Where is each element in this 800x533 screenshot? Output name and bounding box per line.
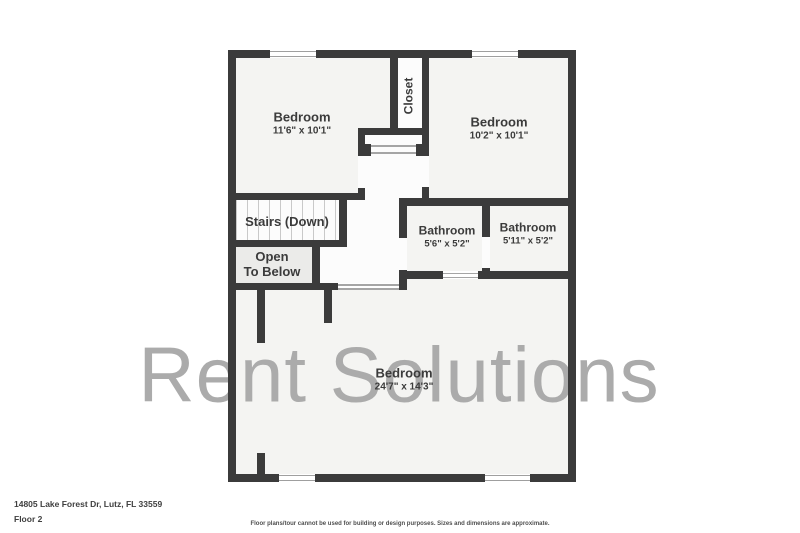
room-name: To Below <box>244 265 301 280</box>
opening-line <box>443 273 478 275</box>
room-name: Bedroom <box>470 115 529 131</box>
door-opening-bedroom-top-right <box>422 155 429 187</box>
opening-cap <box>416 144 429 156</box>
door-opening-bathroom-right <box>482 237 490 268</box>
window-symbol <box>272 474 322 482</box>
door-opening-bathroom-left <box>399 238 407 270</box>
opening-line <box>338 288 399 290</box>
wall-closet-right <box>422 58 429 155</box>
room-label-bedroom-bottom: Bedroom 24'7" x 14'3" <box>375 366 434 395</box>
room-name: Closet <box>402 78 417 115</box>
room-label-bedroom-top-right: Bedroom 10'2" x 10'1" <box>470 115 529 144</box>
room-label-bathroom-left: Bathroom 5'6" x 5'2" <box>419 224 476 251</box>
wall-bathrooms-bottom <box>478 271 576 279</box>
room-label-open-to-below: Open To Below <box>244 250 301 280</box>
opening-cap <box>358 144 371 156</box>
bedroom-top-left-fill <box>236 135 358 193</box>
door-opening-bedroom-top-left <box>358 155 365 188</box>
wall-under-closet <box>358 128 429 135</box>
window-symbol <box>465 50 525 58</box>
wall-open-to-below-bottom <box>228 283 338 290</box>
room-dimensions: 24'7" x 14'3" <box>375 382 434 395</box>
opening-line <box>443 277 478 279</box>
room-name: Bedroom <box>375 366 434 382</box>
wall-corridor-right <box>422 187 429 198</box>
opening-line <box>371 145 416 147</box>
room-name: Bathroom <box>500 221 557 236</box>
room-dimensions: 5'11" x 5'2" <box>500 236 557 248</box>
room-label-closet: Closet <box>402 78 417 115</box>
window-symbol <box>478 474 537 482</box>
window-symbol <box>263 50 323 58</box>
room-label-stairs: Stairs (Down) <box>245 214 329 230</box>
footer-address: 14805 Lake Forest Dr, Lutz, FL 33559 <box>14 499 162 509</box>
wall-stub <box>324 290 332 323</box>
room-dimensions: 10'2" x 10'1" <box>470 131 529 144</box>
wall-outer-left <box>228 50 236 482</box>
room-dimensions: 11'6" x 10'1" <box>273 126 331 139</box>
room-label-bedroom-top-left: Bedroom 11'6" x 10'1" <box>273 110 331 139</box>
footer-floor-label: Floor 2 <box>14 514 42 524</box>
room-name: Stairs (Down) <box>245 214 329 230</box>
wall-stub <box>257 290 265 343</box>
wall-stub <box>257 453 265 474</box>
floor-plan-page: Rent Solutions Bedro <box>0 0 800 533</box>
room-dimensions: 5'6" x 5'2" <box>419 239 476 251</box>
wall-closet-left <box>390 58 398 135</box>
room-name: Bedroom <box>273 110 331 126</box>
room-name: Bathroom <box>419 224 476 239</box>
wall-bathrooms-bottom <box>399 271 443 279</box>
room-name: Open <box>244 250 301 265</box>
opening-line <box>338 284 399 286</box>
wall-bathroom-divider <box>482 198 490 237</box>
wall-stairs-bottom <box>228 240 343 247</box>
wall-outer-right <box>568 50 576 482</box>
opening-line <box>371 152 416 154</box>
wall-bathroom-left <box>399 198 407 238</box>
room-label-bathroom-right: Bathroom 5'11" x 5'2" <box>500 221 557 248</box>
footer-disclaimer: Floor plans/tour cannot be used for buil… <box>250 521 549 527</box>
wall-stairs-right <box>339 193 347 247</box>
